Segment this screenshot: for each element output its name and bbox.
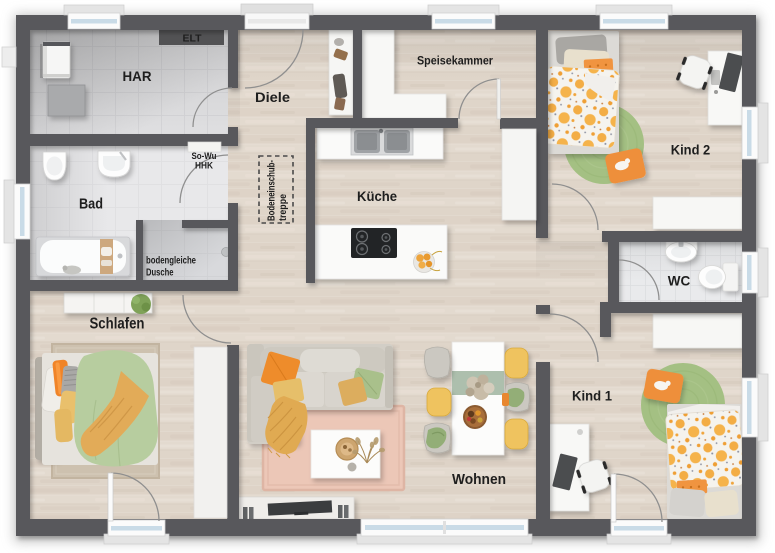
svg-text:Dusche: Dusche — [146, 267, 174, 279]
svg-text:WC: WC — [668, 274, 691, 289]
svg-text:So-Wu: So-Wu — [192, 151, 217, 161]
svg-text:Küche: Küche — [357, 188, 397, 204]
svg-text:treppe: treppe — [278, 194, 289, 221]
svg-text:HAR: HAR — [123, 68, 152, 84]
svg-text:Bodeneinschub-: Bodeneinschub- — [267, 160, 278, 221]
svg-text:Kind 1: Kind 1 — [572, 388, 612, 404]
svg-text:Schlafen: Schlafen — [90, 316, 145, 333]
svg-text:Wohnen: Wohnen — [452, 472, 506, 488]
svg-text:Diele: Diele — [255, 89, 290, 105]
svg-text:bodengleiche: bodengleiche — [146, 255, 196, 267]
svg-text:Speisekammer: Speisekammer — [417, 56, 493, 68]
svg-text:Kind 2: Kind 2 — [671, 142, 711, 158]
svg-text:Bad: Bad — [79, 196, 103, 213]
svg-text:ELT: ELT — [183, 34, 202, 45]
svg-text:HHK: HHK — [195, 161, 213, 171]
